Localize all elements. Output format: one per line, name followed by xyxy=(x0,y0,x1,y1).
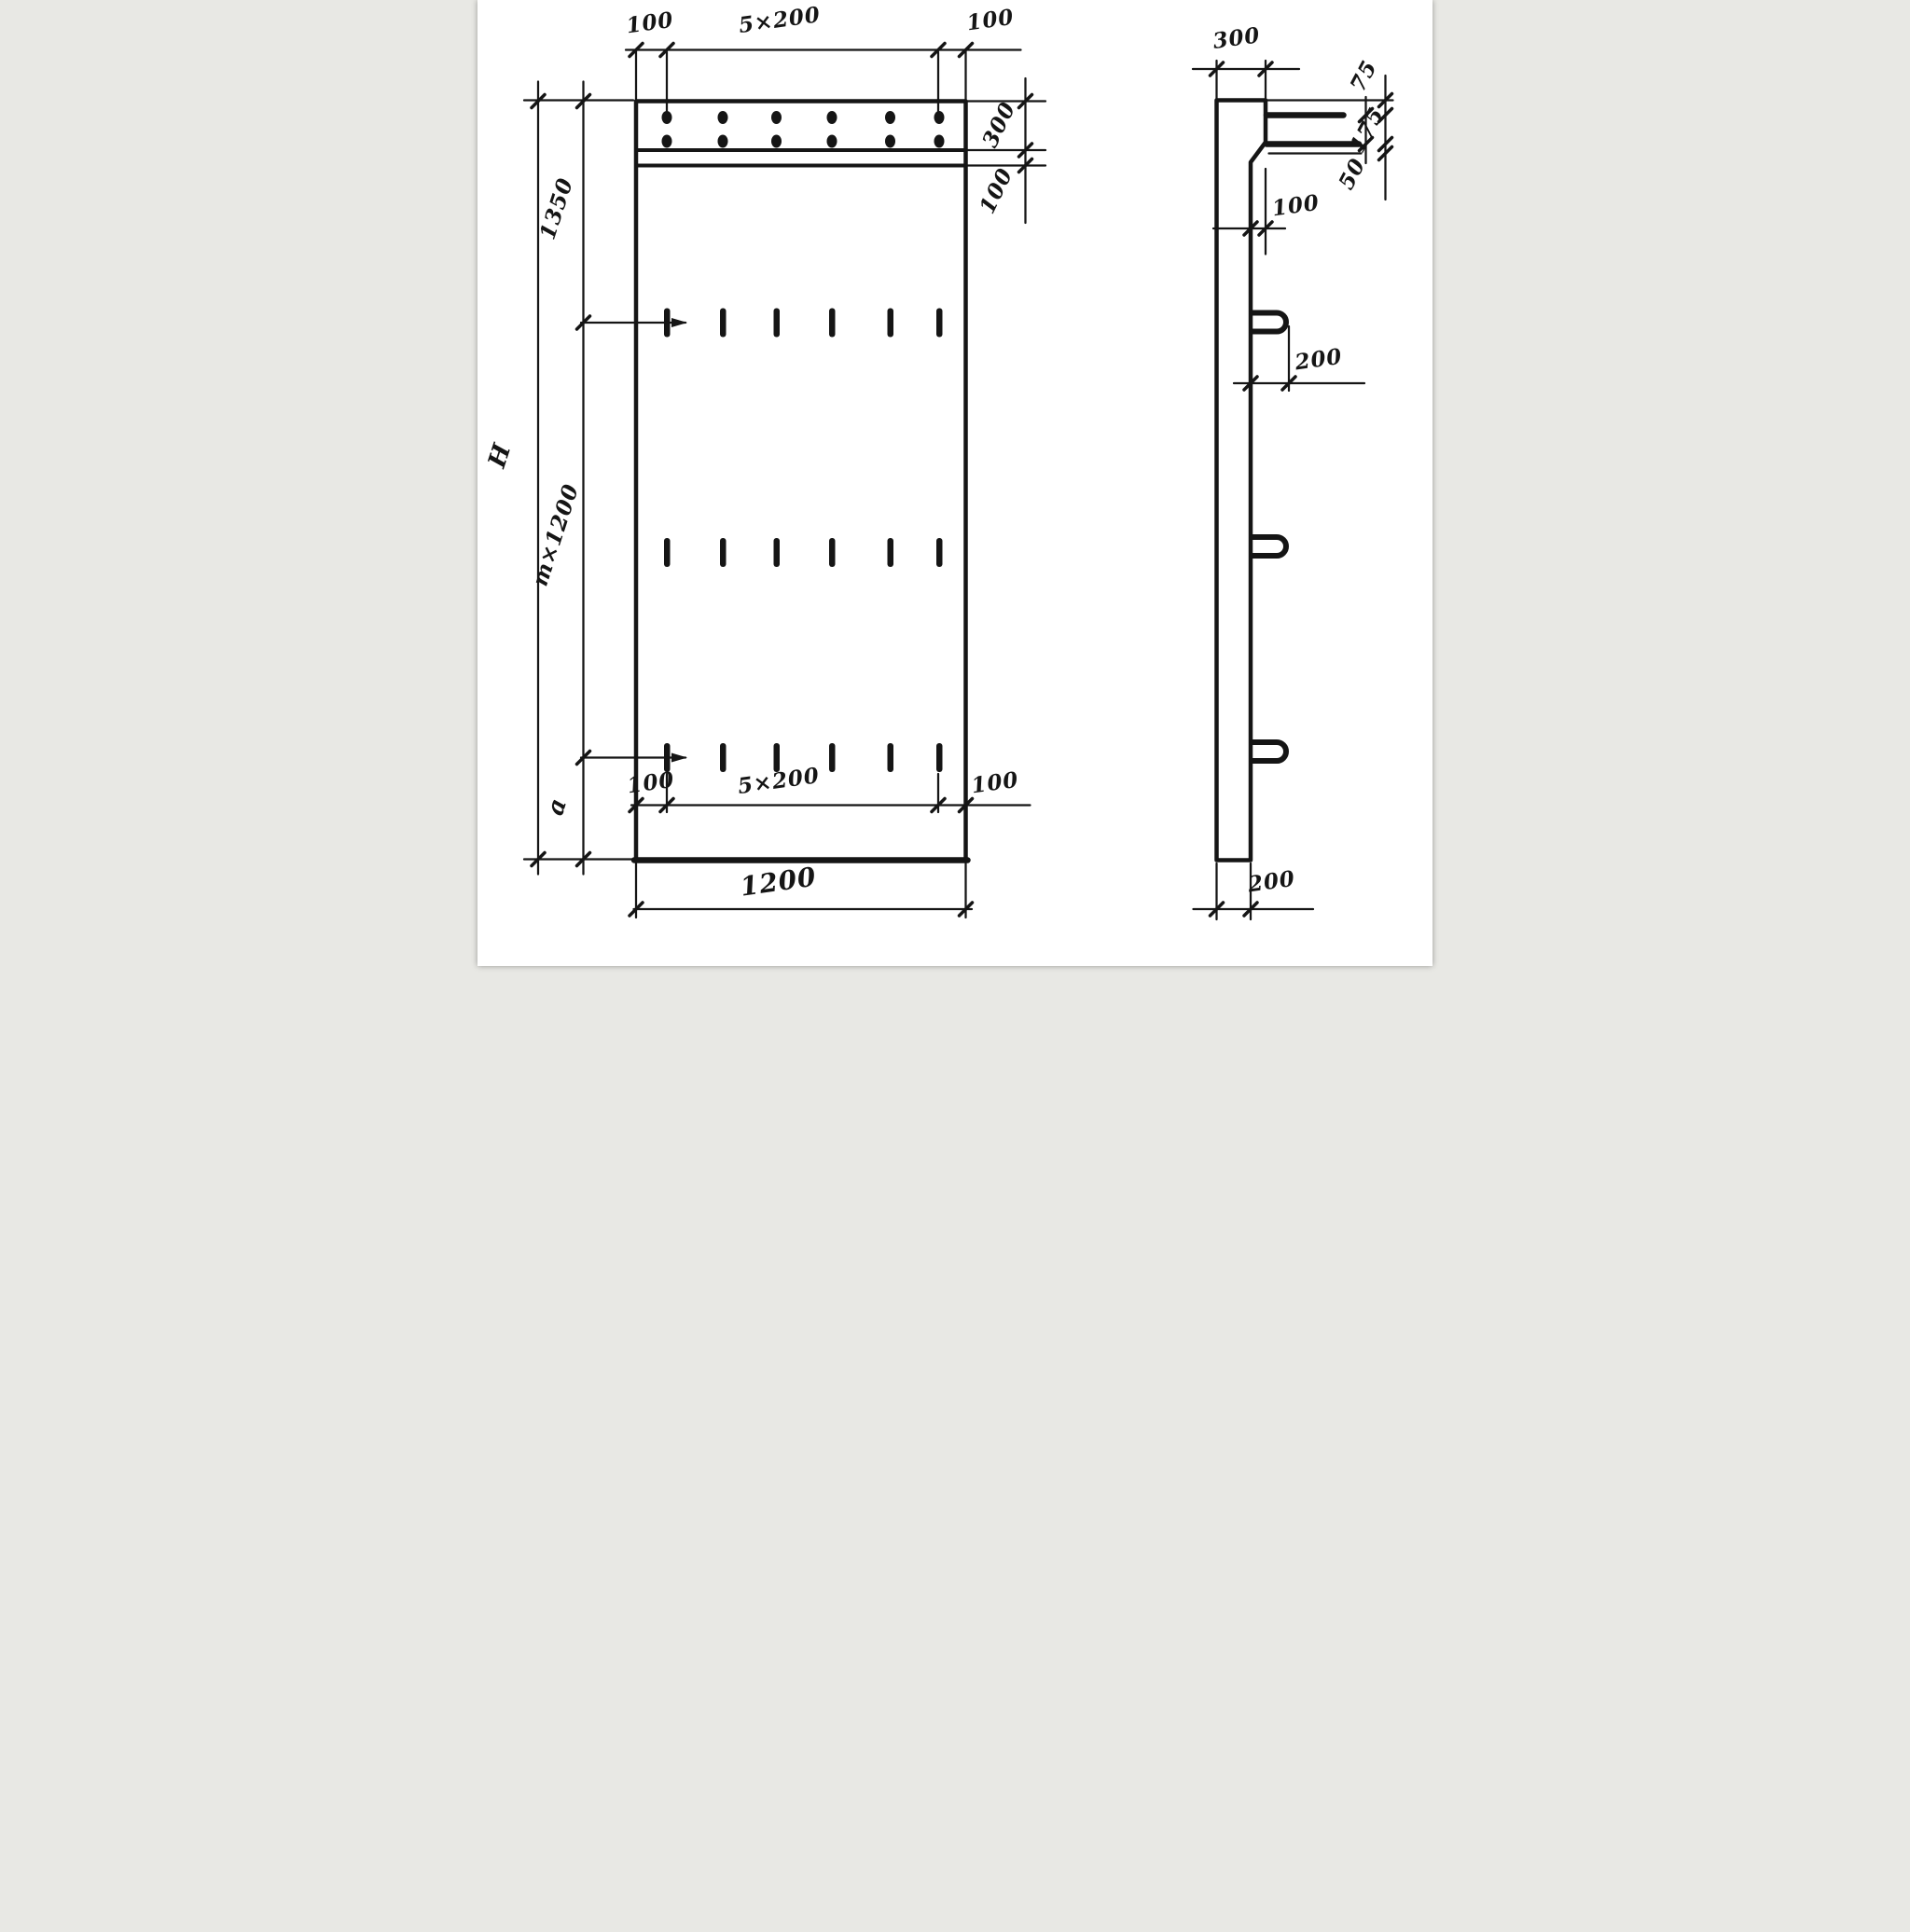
slot-mark xyxy=(774,538,781,567)
dim-label-a: a xyxy=(541,794,573,819)
dim-label-side-300: 300 xyxy=(1211,22,1262,54)
dim-label-top-left-100: 100 xyxy=(625,7,675,39)
anchor-dot xyxy=(662,135,672,148)
dim-label-75: 75 xyxy=(1345,56,1382,96)
anchor-dot xyxy=(771,135,782,148)
slot-mark xyxy=(829,538,836,567)
slot-mark xyxy=(774,743,781,772)
anchor-dot xyxy=(885,111,895,124)
dim-label-groove-100: 100 xyxy=(975,164,1018,218)
dim-label-bottom-left-100: 100 xyxy=(626,767,676,799)
slot-mark-rows xyxy=(664,309,943,773)
lifting-loop xyxy=(1252,313,1286,332)
front-view: 100 5×200 100 1350 m×1200 H a 300 100 10… xyxy=(483,2,1045,918)
dim-label-1200: 1200 xyxy=(739,862,819,903)
dim-label-top-5x200: 5×200 xyxy=(737,2,822,38)
dim-label-chamfer-100: 100 xyxy=(1270,190,1321,222)
side-view: 300 75 175 50 100 200 200 xyxy=(1193,22,1393,919)
slot-mark xyxy=(936,309,943,338)
anchor-dot xyxy=(885,135,895,148)
dim-label-loop-200: 200 xyxy=(1293,344,1344,376)
slot-mark xyxy=(888,538,894,567)
anchor-dot xyxy=(827,135,837,148)
slot-mark xyxy=(936,538,943,567)
panel-technical-drawing: 100 5×200 100 1350 m×1200 H a 300 100 10… xyxy=(477,0,1432,966)
slot-mark xyxy=(888,309,894,338)
slot-mark xyxy=(720,538,727,567)
slot-mark xyxy=(664,538,671,567)
dim-label-m-x-1200: m×1200 xyxy=(527,480,584,588)
slot-mark xyxy=(720,309,727,338)
dim-label-cap-300: 300 xyxy=(977,98,1021,152)
row3-arrowhead xyxy=(671,753,687,763)
dim-label-bottom-200: 200 xyxy=(1245,866,1296,898)
dim-label-1350: 1350 xyxy=(535,174,579,242)
drawing-sheet: 100 5×200 100 1350 m×1200 H a 300 100 10… xyxy=(477,0,1432,966)
anchor-dot xyxy=(771,111,782,124)
slot-mark xyxy=(829,743,836,772)
slot-mark xyxy=(829,309,836,338)
anchor-dot xyxy=(934,135,945,148)
side-profile-outline xyxy=(1217,101,1266,861)
dim-label-bottom-right-100: 100 xyxy=(970,767,1020,799)
dim-label-top-right-100: 100 xyxy=(965,5,1016,36)
slot-mark xyxy=(720,743,727,772)
anchor-dot xyxy=(718,111,728,124)
lifting-loop xyxy=(1252,742,1286,761)
slot-mark xyxy=(936,743,943,772)
anchor-dot xyxy=(827,111,837,124)
panel-outline xyxy=(636,102,966,861)
slot-mark xyxy=(888,743,894,772)
anchor-dot-grid xyxy=(662,111,945,148)
anchor-dot xyxy=(718,135,728,148)
dim-label-H: H xyxy=(483,439,518,472)
dim-label-bottom-5x200: 5×200 xyxy=(736,763,821,799)
row1-arrowhead xyxy=(671,318,687,327)
lifting-loop xyxy=(1252,537,1286,556)
slot-mark xyxy=(774,309,781,338)
